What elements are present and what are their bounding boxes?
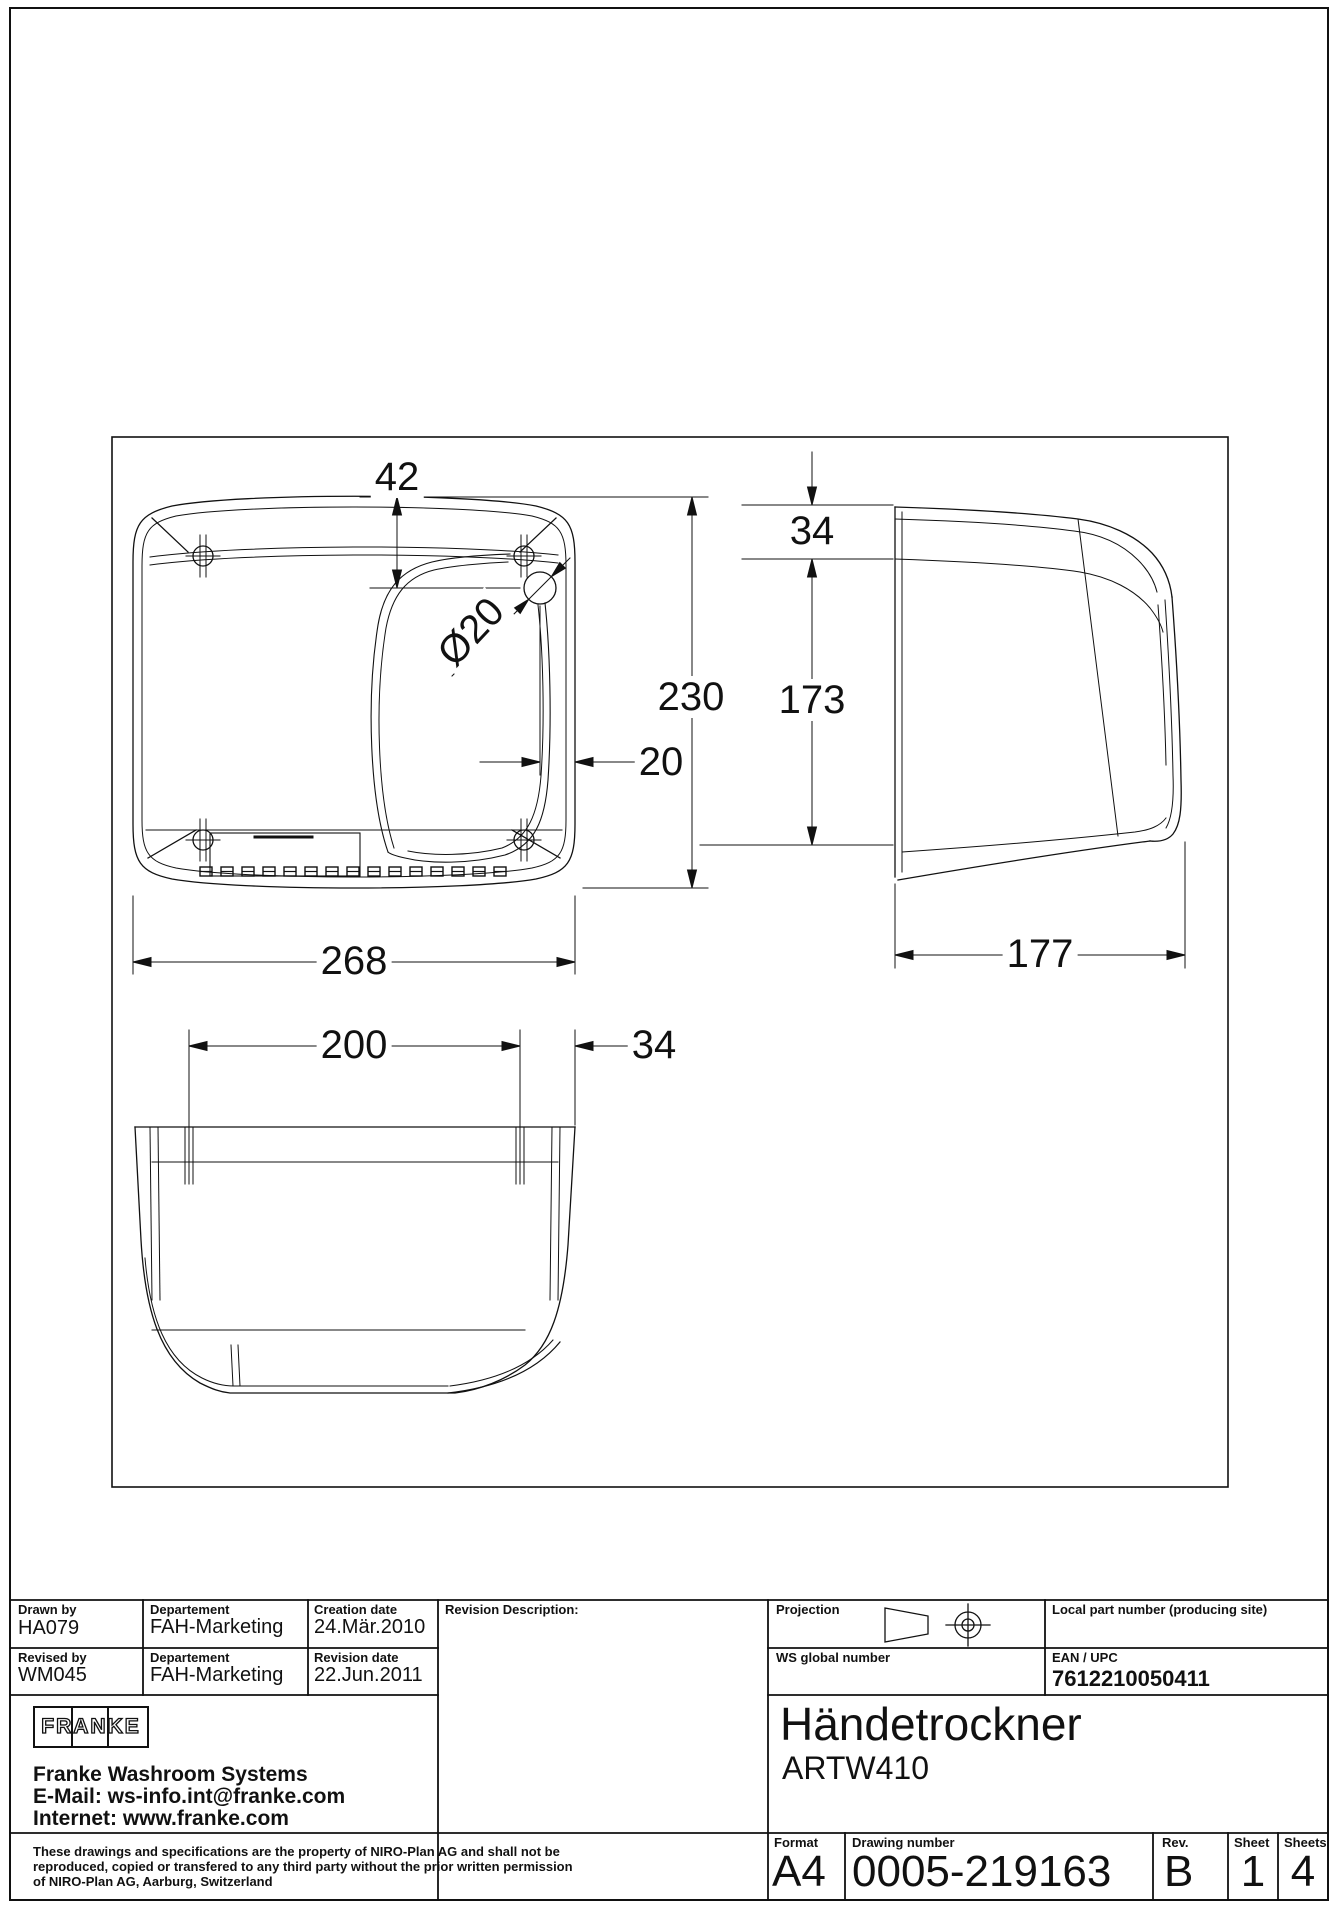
dim-bottom-hole-spacing: 200 — [317, 1024, 392, 1066]
bottom-view — [135, 1127, 575, 1393]
revised-by-value: WM045 — [18, 1665, 87, 1686]
ean-upc-label: EAN / UPC — [1052, 1651, 1118, 1665]
franke-logo: FRANKE — [33, 1706, 149, 1748]
legal-line-2: reproduced, copied or transfered to any … — [33, 1860, 573, 1874]
drawn-departement-label: Departement — [150, 1603, 229, 1617]
dim-front-top-hole-offset: 42 — [371, 456, 424, 498]
format-value: A4 — [772, 1849, 826, 1895]
revised-departement-value: FAH-Marketing — [150, 1665, 283, 1686]
projection-symbol-icon — [885, 1604, 990, 1646]
dim-front-hole-edge-offset: 20 — [635, 741, 688, 783]
drawn-by-label: Drawn by — [18, 1603, 77, 1617]
company-internet: Internet: www.franke.com — [33, 1808, 289, 1830]
sheets-value: 4 — [1278, 1849, 1328, 1895]
revision-date-label: Revision date — [314, 1651, 399, 1665]
drawing-sheet: 42 Ø20 230 20 268 200 34 34 173 177 Draw… — [0, 0, 1338, 1920]
front-view — [133, 496, 575, 888]
drawn-departement-value: FAH-Marketing — [150, 1617, 283, 1638]
ws-global-number-label: WS global number — [776, 1651, 890, 1665]
mounting-hole-top-right — [507, 535, 541, 577]
dim-front-width: 268 — [317, 940, 392, 982]
legal-line-3: of NIRO-Plan AG, Aarburg, Switzerland — [33, 1875, 273, 1889]
drawing-number-value: 0005-219163 — [852, 1849, 1111, 1895]
side-view — [895, 507, 1181, 880]
revision-date-value: 22.Jun.2011 — [314, 1665, 423, 1686]
dim-front-height: 230 — [654, 676, 729, 718]
local-part-number-label: Local part number (producing site) — [1052, 1603, 1267, 1617]
product-title: Händetrockner — [780, 1700, 1082, 1748]
mounting-hole-top-left — [186, 535, 220, 577]
revised-departement-label: Departement — [150, 1651, 229, 1665]
drawn-by-value: HA079 — [18, 1618, 79, 1639]
revised-by-label: Revised by — [18, 1651, 87, 1665]
company-email: E-Mail: ws-info.int@franke.com — [33, 1786, 345, 1808]
dim-side-front-height: 173 — [775, 679, 850, 721]
mounting-hole-bottom-left — [186, 819, 220, 861]
product-model: ARTW410 — [782, 1752, 929, 1786]
projection-label: Projection — [776, 1603, 840, 1617]
sheet-value: 1 — [1228, 1849, 1278, 1895]
creation-date-label: Creation date — [314, 1603, 397, 1617]
creation-date-value: 24.Mär.2010 — [314, 1617, 425, 1638]
legal-line-1: These drawings and specifications are th… — [33, 1845, 560, 1859]
revision-value: B — [1164, 1849, 1193, 1895]
franke-logo-text: FRANKE — [41, 1715, 141, 1739]
revision-description-label: Revision Description: — [445, 1603, 579, 1617]
dim-bottom-hole-edge-offset: 34 — [628, 1024, 681, 1066]
dimension-lines — [133, 452, 1185, 1184]
dim-side-top-depth: 34 — [786, 510, 839, 552]
company-name: Franke Washroom Systems — [33, 1764, 308, 1786]
mounting-hole-bottom-right — [507, 819, 541, 861]
ean-upc-value: 7612210050411 — [1052, 1667, 1210, 1690]
dim-side-depth: 177 — [1003, 933, 1078, 975]
